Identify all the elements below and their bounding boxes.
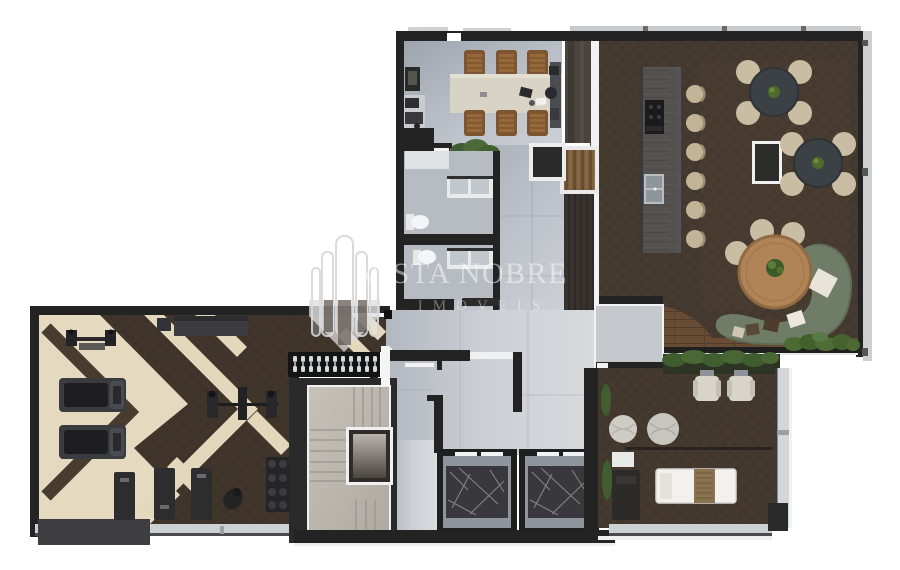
svg-text:IMÓVEIS: IMÓVEIS: [418, 297, 551, 314]
svg-text:VISTA NOBRE: VISTA NOBRE: [358, 257, 568, 290]
